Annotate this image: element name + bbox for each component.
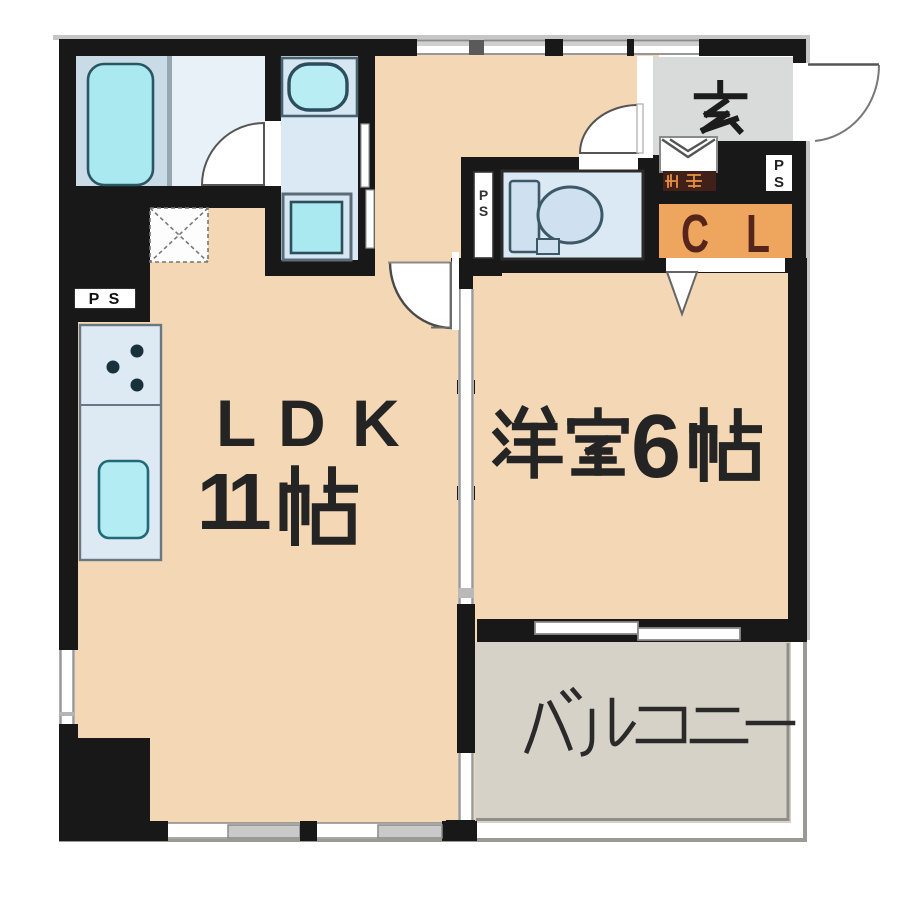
svg-text:K: K xyxy=(352,386,400,460)
svg-text:P: P xyxy=(89,291,100,308)
svg-text:11: 11 xyxy=(197,457,270,546)
svg-text:S: S xyxy=(774,174,784,191)
svg-text:6: 6 xyxy=(631,397,681,497)
svg-text:C: C xyxy=(681,204,709,264)
svg-text:P: P xyxy=(774,157,784,174)
svg-text:S: S xyxy=(479,203,488,219)
svg-text:D: D xyxy=(278,386,326,460)
svg-text:S: S xyxy=(109,291,120,308)
svg-text:L: L xyxy=(216,386,256,460)
svg-text:P: P xyxy=(479,187,488,203)
svg-text:L: L xyxy=(746,204,770,264)
